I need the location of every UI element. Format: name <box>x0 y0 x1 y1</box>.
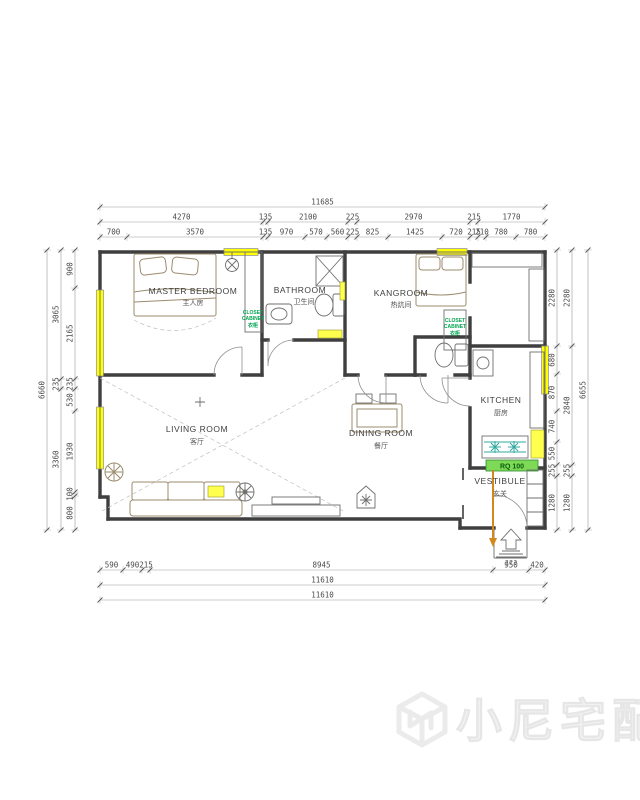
dim-label: 3065 <box>52 305 61 323</box>
dim-label: 490 <box>126 561 140 570</box>
dining-set <box>352 394 402 432</box>
dim-label: 215 <box>139 561 153 570</box>
dim-label: 2970 <box>404 213 423 222</box>
dim-label: 530 <box>66 393 75 407</box>
label-vestibule: VESTIBULE <box>474 476 525 486</box>
dim-label: 100 <box>66 487 75 501</box>
kang-bed <box>416 254 466 306</box>
floor-drain-icon <box>357 486 375 508</box>
dim-label: 2100 <box>299 213 318 222</box>
label-master-bedroom-cn: 主人房 <box>183 298 204 307</box>
stove-burner-icon <box>489 441 520 453</box>
dim-label: 1280 <box>563 493 572 512</box>
dim-label: 235 <box>52 377 61 391</box>
dim-label: 135 <box>259 228 273 237</box>
closet-right-label-3: 衣柜 <box>450 330 460 337</box>
dim-label: 720 <box>449 228 463 237</box>
watermark: 小尼宅配 <box>399 694 640 747</box>
dim-label: 740 <box>548 419 557 433</box>
dim-label: 8945 <box>312 561 330 570</box>
label-vestibule-cn: 玄关 <box>493 489 507 498</box>
label-dining-room-cn: 餐厅 <box>374 441 388 450</box>
label-living-room: LIVING ROOM <box>166 424 228 434</box>
dim-label: 215 <box>467 213 481 222</box>
dim-label: 11685 <box>311 198 334 207</box>
label-dining-room: DINING ROOM <box>349 428 413 438</box>
label-kangroom-cn: 热炕间 <box>391 300 412 309</box>
label-bathroom-cn: 卫生间 <box>294 297 315 306</box>
dim-label: 680 <box>548 353 557 367</box>
dim-label: 3570 <box>186 228 205 237</box>
dim-label: 950 <box>504 561 518 570</box>
closet-left-label-2: CABINET <box>242 316 264 322</box>
dim-label: 11610 <box>311 576 334 585</box>
dim-label: 235 <box>66 377 75 391</box>
dim-label: 6660 <box>38 380 47 399</box>
dim-label: 420 <box>530 561 544 570</box>
dim-label: 1770 <box>502 213 521 222</box>
vestibule-fixtures <box>527 470 543 526</box>
living-room-furniture <box>100 378 345 516</box>
dim-label: 780 <box>524 228 538 237</box>
bathroom-fixtures <box>266 256 345 338</box>
dim-label: 560 <box>331 228 345 237</box>
wc-toilet <box>435 343 468 367</box>
floor-plan-page: MASTER BEDROOM 主人房 BATHROOM 卫生间 KANGROOM… <box>0 0 640 800</box>
dim-label: 870 <box>548 385 557 399</box>
dim-label: 255 <box>563 464 572 478</box>
dim-label: 900 <box>66 262 75 276</box>
label-kitchen: KITCHEN <box>481 395 522 405</box>
watermark-text: 小尼宅配 <box>456 695 640 747</box>
dim-label: 225 <box>346 213 360 222</box>
dim-label: 2280 <box>563 288 572 307</box>
dim-label: 1280 <box>548 493 557 512</box>
dim-label: 800 <box>66 506 75 520</box>
dim-label: 3360 <box>52 450 61 469</box>
dim-label: 825 <box>366 228 380 237</box>
label-bathroom: BATHROOM <box>274 285 326 295</box>
windows <box>97 249 549 469</box>
closet-right-label-2: CABINET <box>444 324 466 330</box>
dim-label: 570 <box>309 228 323 237</box>
floor-plan-drawing: MASTER BEDROOM 主人房 BATHROOM 卫生间 KANGROOM… <box>0 0 640 800</box>
dim-label: 2840 <box>563 396 572 415</box>
dim-label: 550 <box>548 446 557 460</box>
dim-label: 590 <box>105 561 119 570</box>
dim-label: 700 <box>107 228 121 237</box>
fan-icon <box>236 483 254 501</box>
dim-label: 255 <box>548 464 557 478</box>
dim-label: 135 <box>259 213 273 222</box>
dim-label: 11610 <box>311 591 334 600</box>
dim-label: 4270 <box>172 213 191 222</box>
dim-label: 1425 <box>406 228 424 237</box>
dim-label: 2165 <box>66 324 75 342</box>
label-master-bedroom: MASTER BEDROOM <box>149 286 238 296</box>
dim-label: 970 <box>280 228 294 237</box>
storage-cabinets-topright <box>472 253 544 341</box>
entry-arrow-icon <box>501 529 521 549</box>
label-living-room-cn: 客厅 <box>190 437 204 446</box>
brand-cube-icon <box>399 694 445 745</box>
gas-meter-label: RQ 100 <box>500 464 524 471</box>
dim-label: 780 <box>494 228 508 237</box>
dim-label: 6655 <box>579 381 588 399</box>
dim-label: 210 <box>475 228 489 237</box>
closet-left-label-3: 衣柜 <box>248 322 258 329</box>
dim-label: 1930 <box>66 442 75 461</box>
dim-label: 2280 <box>548 288 557 307</box>
label-kitchen-cn: 厨房 <box>494 408 508 417</box>
dim-label: 225 <box>346 228 360 237</box>
label-kangroom: KANGROOM <box>374 288 429 298</box>
